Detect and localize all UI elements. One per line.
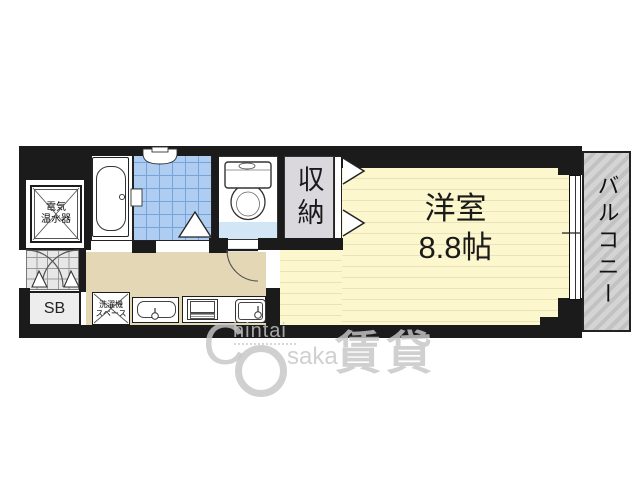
wall [79,250,86,292]
floor-plan: 収納 バルコニー 電気 温水器 SB 洗濯機 スペース [0,0,640,480]
watermark-kanji: 賃貸 [335,317,437,383]
balcony-area: バルコニー [582,151,631,332]
washbasin-bowl [137,301,176,318]
wall [19,325,582,338]
washbasin [132,297,179,323]
wall [132,241,156,253]
watermark-hintai: hintai [233,320,287,343]
shoe-box: SB [28,291,81,326]
toilet-floor-strip [219,222,277,239]
bathroom-tile-floor [133,153,212,241]
washing-machine-space: 洗濯機 スペース [92,292,130,325]
main-room-name: 洋室 [342,189,569,228]
wall [558,298,582,338]
wall [278,156,284,240]
washer-label-line1: 洗濯機 [95,300,126,309]
closet-folding-door [334,156,342,240]
closet-area: 収納 [284,156,334,240]
entrance-genkan [26,250,79,290]
wall [341,146,582,168]
main-room-size: 8.8帖 [342,228,569,267]
watermark-saka: saka [287,343,338,371]
wall [558,151,582,175]
water-heater-label-line1: 電気 [41,202,71,214]
shoe-box-label: SB [44,300,65,318]
main-room-label: 洋室 8.8帖 [342,189,569,267]
balcony-label: バルコニー [591,174,623,309]
watermark-logo-o [235,345,287,397]
wall [258,238,343,250]
window [569,175,581,300]
wall [212,153,219,238]
wall [209,238,228,253]
water-heater-label-line2: 温水器 [41,214,71,226]
bathtub [92,157,129,237]
wall [19,146,341,156]
washer-label-line2: スペース [95,309,126,318]
electric-water-heater: 電気 温水器 [30,185,82,243]
closet-label: 収納 [290,165,329,231]
main-room-floor-extension [280,250,342,325]
bathtub-inner [96,166,126,231]
